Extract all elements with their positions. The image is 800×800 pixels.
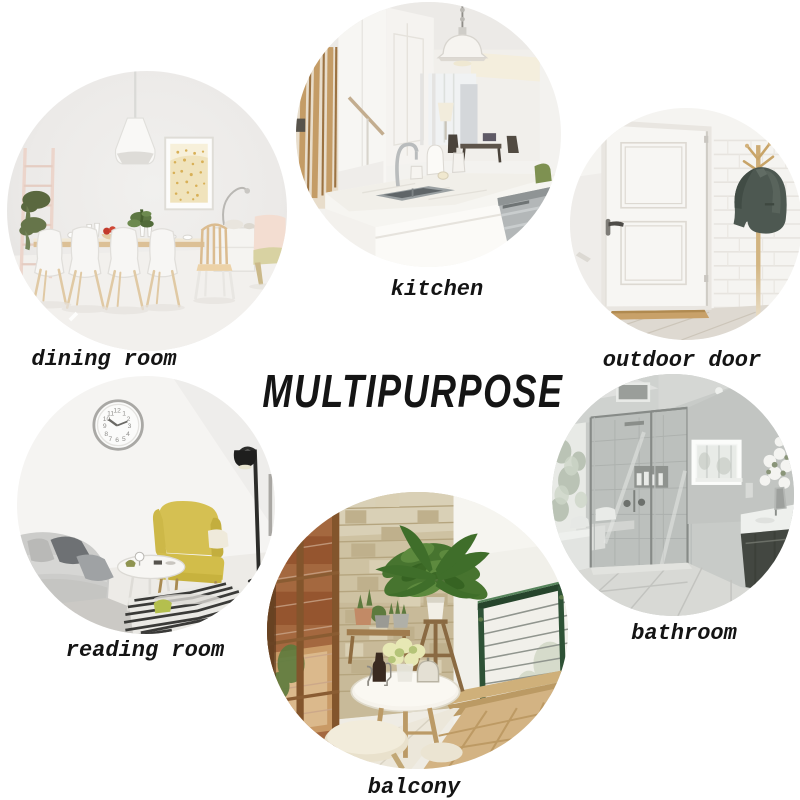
svg-text:11: 11 xyxy=(107,410,114,417)
svg-text:6: 6 xyxy=(115,437,119,444)
svg-text:5: 5 xyxy=(122,436,126,443)
svg-text:4: 4 xyxy=(126,431,130,438)
svg-text:7: 7 xyxy=(109,436,113,443)
svg-text:9: 9 xyxy=(103,423,107,430)
svg-text:3: 3 xyxy=(128,423,132,430)
svg-text:12: 12 xyxy=(113,408,121,415)
svg-text:8: 8 xyxy=(104,431,108,438)
